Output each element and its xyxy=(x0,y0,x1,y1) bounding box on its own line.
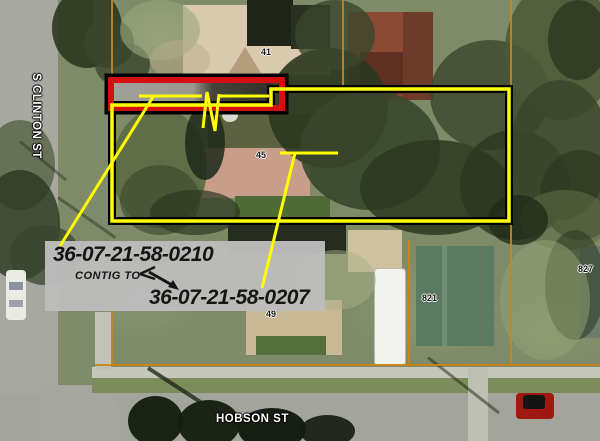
house-number-45: 45 xyxy=(256,150,266,160)
tree-canopy xyxy=(548,0,600,80)
tree-canopy xyxy=(295,0,375,70)
parcel-number-0207: 36-07-21-58-0207 xyxy=(149,286,309,310)
red-car xyxy=(516,393,554,419)
white-car-window xyxy=(9,282,23,290)
white-car xyxy=(6,270,26,320)
aerial-parcel-map: S CLINTON ST HOBSON ST 41 45 49 821 827 … xyxy=(0,0,600,441)
tree-canopy xyxy=(128,396,183,441)
house-45-lawn xyxy=(235,196,330,222)
street-label-s-clinton: S CLINTON ST xyxy=(30,73,42,159)
tree-canopy xyxy=(185,105,225,180)
parcel-line-v-821 xyxy=(408,240,410,366)
strip-parcel-outline xyxy=(111,80,282,108)
parcel-line-v-right-bottom xyxy=(510,223,512,366)
tree-canopy xyxy=(150,190,240,235)
house-number-827: 827 xyxy=(578,264,593,274)
house-number-821: 821 xyxy=(422,293,437,303)
house-49-yard xyxy=(256,336,326,355)
trailer xyxy=(374,268,406,366)
house-number-41: 41 xyxy=(261,47,271,57)
tree-canopy xyxy=(500,240,590,360)
parcel-line-v-mid-top xyxy=(342,0,344,86)
road-corner xyxy=(40,385,120,441)
parcel-line-h-hobson xyxy=(95,364,600,366)
sidewalk-vertical xyxy=(95,312,111,370)
parcel-line-v-left-top xyxy=(111,0,113,80)
parcel-line-v-right-top xyxy=(510,0,512,87)
street-label-hobson: HOBSON ST xyxy=(216,413,289,425)
tree-canopy xyxy=(300,415,355,441)
house-top-right-roof xyxy=(403,12,433,100)
house-821-ridge xyxy=(442,246,447,346)
red-car-roof xyxy=(523,395,545,409)
white-car-window2 xyxy=(9,300,23,307)
house-41-roof-dark xyxy=(247,0,293,46)
parcel-callout-box: 36-07-21-58-0210 CONTIG TO 36-07-21-58-0… xyxy=(45,241,325,311)
tree-canopy xyxy=(222,108,238,122)
strip-parcel-interior xyxy=(113,83,273,107)
tree-canopy xyxy=(150,40,210,80)
sidewalk-horizontal xyxy=(92,367,600,378)
house-41-gable xyxy=(229,47,261,73)
tree-canopy xyxy=(488,195,548,245)
